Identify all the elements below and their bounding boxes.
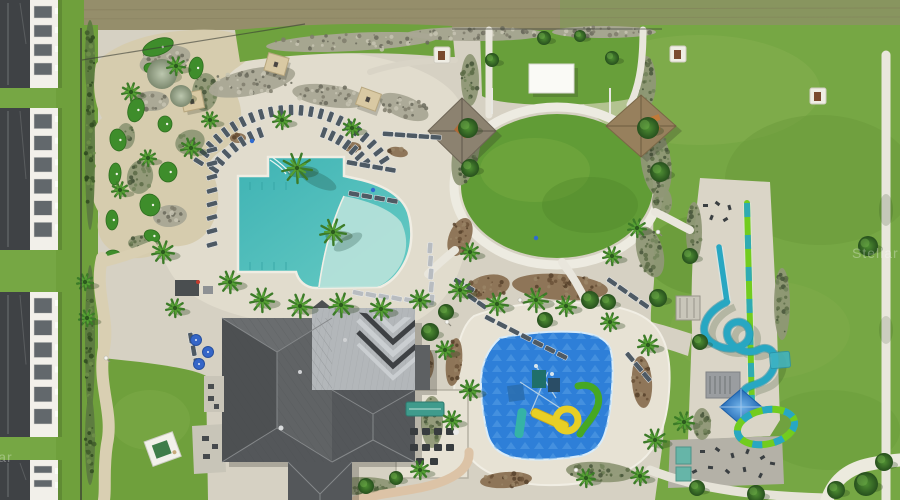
- lounge-chair: [428, 281, 434, 292]
- lounge-chair: [430, 134, 441, 140]
- grill-pad: [670, 46, 686, 62]
- towel-dot: [534, 236, 538, 240]
- fitness-mat: [676, 447, 691, 464]
- aerial-photo-canvas: Stellar Stellar: [0, 0, 900, 500]
- lounge-chair: [406, 133, 417, 139]
- fitness-equipment-item: [703, 204, 708, 207]
- grill-shed: [175, 280, 199, 296]
- lounge-chair: [298, 105, 304, 116]
- lounge-chair: [382, 131, 393, 137]
- patio-table: [453, 429, 459, 435]
- lounge-chair: [288, 104, 293, 115]
- pavilion: [529, 64, 574, 93]
- planting-bed: [774, 268, 790, 340]
- apartment-building: [0, 292, 62, 437]
- lounge-chair: [418, 134, 429, 140]
- apartment-building: [0, 108, 62, 250]
- lounge-chair: [427, 242, 433, 253]
- grill-pad: [434, 47, 450, 63]
- play-tower: [532, 370, 546, 388]
- landing-pool: [769, 351, 790, 369]
- fitness-equipment-item: [700, 450, 705, 453]
- fitness-mats: [676, 447, 691, 481]
- lounge-chair: [428, 268, 434, 279]
- silver-tree: [170, 85, 192, 107]
- towel-dot: [250, 139, 254, 143]
- apartment-building: [0, 460, 62, 500]
- service-pad: [192, 424, 226, 474]
- fitness-mat: [676, 467, 691, 481]
- apartment-building: [0, 0, 62, 88]
- lounge-chair: [394, 132, 405, 138]
- fitness-equipment-item: [708, 466, 713, 469]
- putting-green: [158, 116, 172, 132]
- lounge-chair: [427, 255, 433, 266]
- putting-green: [159, 162, 177, 182]
- play-mat: [507, 384, 525, 402]
- aerial-photo: Stellar Stellar: [0, 0, 900, 500]
- apartment-buildings: [0, 0, 62, 500]
- play-tower: [548, 378, 560, 392]
- grill-pad: [810, 88, 826, 104]
- towel-dot: [371, 188, 375, 192]
- blue-umbrella: [194, 359, 205, 370]
- watermark: Stellar: [852, 245, 899, 261]
- blue-umbrella: [203, 347, 214, 358]
- putting-green: [106, 210, 118, 230]
- blue-umbrella: [191, 335, 202, 346]
- watermark-fragment: Stellar: [0, 449, 13, 465]
